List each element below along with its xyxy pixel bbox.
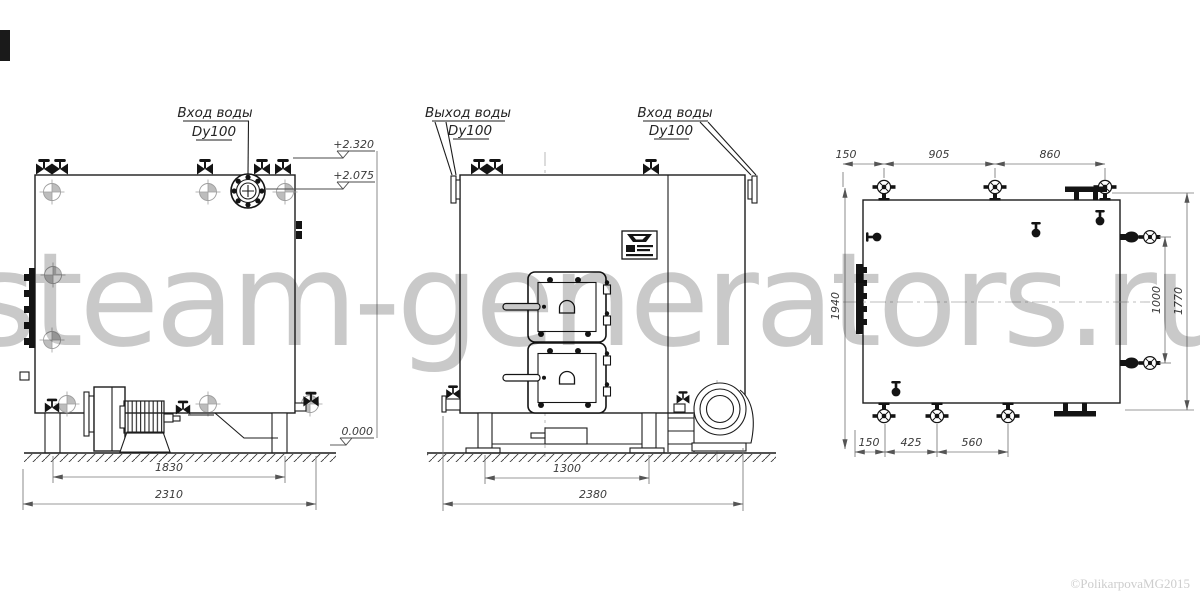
valve-icon xyxy=(197,159,213,175)
valve-icon xyxy=(643,159,659,175)
front-view: +2.320 +2.075 0.000 1830 2310 Вход воды … xyxy=(20,105,377,510)
outlet-flange-icon xyxy=(451,176,460,203)
nameplate xyxy=(622,231,657,259)
valve-icon xyxy=(873,402,896,422)
plan-view: 150 905 860 1940 150 425 560 1000 1770 xyxy=(829,148,1194,457)
dim-560: 560 xyxy=(962,436,983,449)
dim-2380: 2380 xyxy=(579,488,607,501)
dim-1830: 1830 xyxy=(155,461,183,474)
valve-icon xyxy=(275,159,291,175)
dim-1770: 1770 xyxy=(1172,287,1185,315)
blower-fan xyxy=(668,380,753,462)
front-dimensions: 1830 2310 xyxy=(23,456,316,510)
side-fitting-strip xyxy=(29,268,35,348)
inlet-flange-icon xyxy=(748,176,757,203)
valve-icon xyxy=(52,159,68,175)
label-inlet-line2: Dy100 xyxy=(649,123,693,139)
elevation-mid: +2.075 xyxy=(333,169,374,182)
water-inlet-flange-icon xyxy=(231,174,265,208)
valve-icon xyxy=(1120,231,1160,244)
dim-1940: 1940 xyxy=(829,292,842,320)
valve-icon xyxy=(446,385,460,398)
valve-icon xyxy=(926,402,949,422)
dim-425: 425 xyxy=(901,436,922,449)
valve-icon xyxy=(36,159,52,175)
dim-2310: 2310 xyxy=(155,488,183,501)
base-frame xyxy=(466,413,664,453)
rear-inlet-label: Вход воды Dy100 xyxy=(637,105,756,175)
label-outlet-line2: Dy100 xyxy=(448,123,492,139)
valve-icon xyxy=(984,180,1007,200)
dim-860: 860 xyxy=(1040,148,1061,161)
rear-outlet-label: Выход воды Dy100 xyxy=(425,105,511,175)
boiler-body-front xyxy=(35,175,295,413)
valve-icon xyxy=(873,180,896,200)
sheet-artifact xyxy=(0,30,10,61)
copyright: ©PolikarpovaMG2015 xyxy=(1070,576,1190,592)
label-inlet-line1: Вход воды xyxy=(637,105,713,121)
front-inlet-label: Вход воды Dy100 xyxy=(177,105,253,174)
dim-150-bottom: 150 xyxy=(859,436,880,449)
technical-drawing: +2.320 +2.075 0.000 1830 2310 Вход воды … xyxy=(0,0,1200,600)
rear-view: Выход воды Dy100 Вход воды Dy100 1300 23… xyxy=(425,105,776,511)
burner-motor xyxy=(124,401,164,433)
label-inlet-line2: Dy100 xyxy=(192,124,236,140)
boiler-body-plan xyxy=(863,200,1120,403)
valve-icon xyxy=(471,159,487,175)
dim-150-top: 150 xyxy=(836,148,857,161)
elevation-top: +2.320 xyxy=(333,138,374,151)
valve-icon xyxy=(997,402,1020,422)
label-outlet-line1: Выход воды xyxy=(425,105,511,121)
valve-icon xyxy=(1120,357,1160,370)
flange-icon xyxy=(1054,403,1096,417)
valve-icon xyxy=(254,159,270,175)
ground-hatch xyxy=(427,454,776,462)
valve-icon xyxy=(487,159,503,175)
side-stub xyxy=(20,372,29,380)
label-inlet-line1: Вход воды xyxy=(177,105,253,121)
drawing-sheet: +2.320 +2.075 0.000 1830 2310 Вход воды … xyxy=(0,0,1200,600)
dim-905: 905 xyxy=(929,148,950,161)
elevation-zero: 0.000 xyxy=(342,425,374,438)
dim-1000: 1000 xyxy=(1150,286,1163,314)
dim-1300: 1300 xyxy=(553,462,581,475)
